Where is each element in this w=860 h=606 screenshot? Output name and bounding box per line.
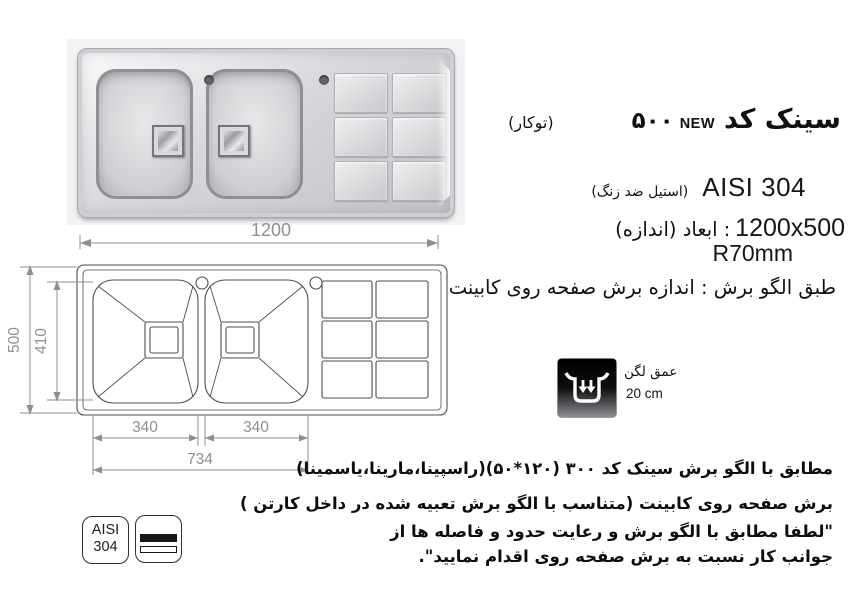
tap-hole-left [196,277,208,289]
note-line-3: "لطفا مطابق با الگو برش و رعایت حدود و ف… [390,522,833,541]
photo-width-dimension: 1200 [60,216,460,252]
drain-left [152,125,184,157]
new-badge: NEW [680,116,715,132]
faucet-hole-right [319,75,329,85]
aisi-304-badge: AISI 304 [82,516,129,564]
dim-label-734: 734 [187,451,213,468]
sink-depth-icon [557,358,617,418]
dim-label-340-right: 340 [243,419,269,436]
drainboard-cell [334,117,388,157]
steel-bar-solid [140,534,177,542]
dimensions-label: ابعاد (اندازه) [615,218,717,241]
sink-bowl-right [206,69,303,199]
technical-drawing: 500 410 340 340 734 [0,258,470,484]
dimension-lines [20,267,308,475]
dimensions-value: 1200x500 [735,214,845,243]
dimensions-colon: : [724,218,731,241]
cut-template-note: طبق الگو برش : اندازه برش صفحه روی کابین… [449,276,836,299]
sink-spec-sheet: 1200 (توکار) ۵۰۰ NEW سینک کد (استیل ضد ز… [0,0,860,606]
aisi-badge-line1: AISI [83,522,128,539]
product-photo [67,39,465,225]
dimensions-line: ابعاد (اندازه) : 1200x500 [615,214,845,243]
steel-sheet-icon [135,515,182,563]
sink-edge-highlight [437,57,450,209]
drainboard-cell [334,161,388,201]
product-code: ۵۰۰ [632,108,674,134]
aisi-badge-line2: 304 [83,539,128,556]
corner-radius-value: R70mm [712,240,793,267]
material-grade: AISI 304 [702,172,806,203]
steel-bar-outline [140,546,177,553]
product-name: سینک کد [724,104,841,135]
dim-label-1200: 1200 [251,220,291,240]
dim-label-340-left: 340 [132,419,158,436]
drain-right [218,125,250,157]
mount-type-label: (توکار) [508,113,553,132]
page-title: (توکار) ۵۰۰ NEW سینک کد [508,104,841,135]
depth-label: عمق لگن [624,364,677,380]
faucet-hole-left [204,75,214,85]
dimension-arrows [27,265,309,474]
dim-label-410: 410 [33,328,50,354]
drawing-outline [77,265,447,415]
drainboard [334,73,446,201]
sink-bowl-left [96,69,193,199]
tap-hole-right [310,277,322,289]
depth-value: 20 cm [626,386,663,401]
dim-label-500: 500 [6,327,23,353]
note-line-1: مطابق با الگو برش سینک کد ۳۰۰ (۱۲۰*۵۰)(ر… [296,459,833,478]
material-line: (استیل ضد زنگ) AISI 304 [591,172,806,203]
note-line-4: جوانب کار نسبت به برش صفحه روی اقدام نما… [418,547,833,566]
material-note: (استیل ضد زنگ) [591,184,688,200]
note-line-2: برش صفحه روی کابینت (متناسب با الگو برش … [240,494,833,513]
drainboard-cell [334,73,388,113]
sink-render [77,48,455,218]
